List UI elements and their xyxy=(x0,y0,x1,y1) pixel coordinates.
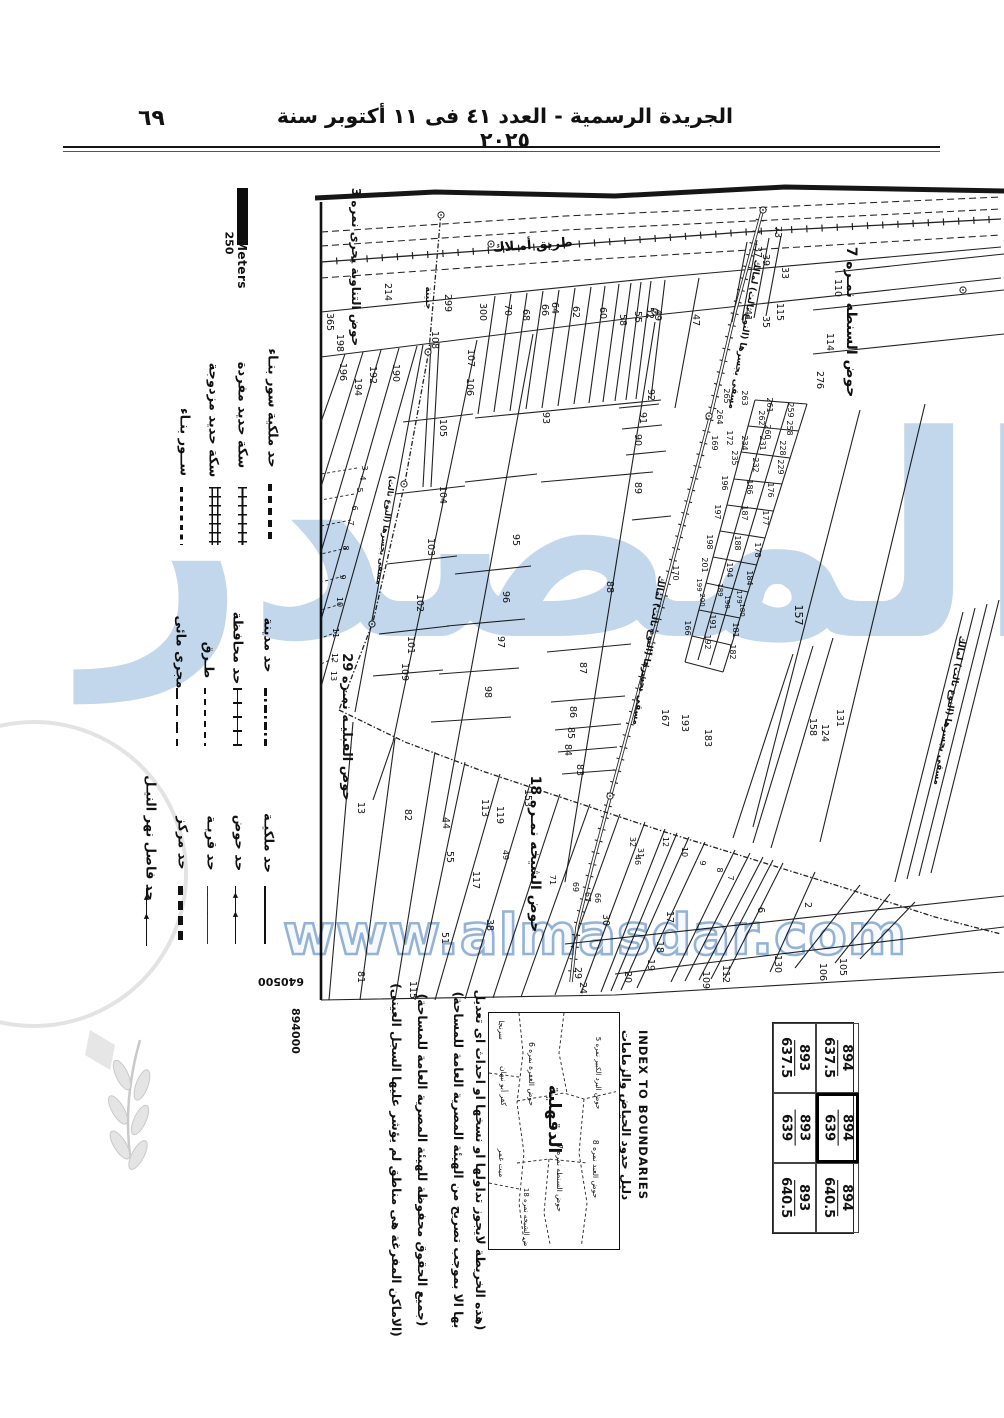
circle-watermark xyxy=(0,720,188,1028)
index-boundary-line xyxy=(489,1183,519,1189)
legend-sample-dotline-icon: ·· xyxy=(207,886,208,944)
parcel-number: 12 xyxy=(661,837,670,847)
legend-sample-rail2-icon xyxy=(209,487,221,545)
parcel-number: 87 xyxy=(577,662,588,674)
junction-marker-dot xyxy=(403,483,405,485)
parcel-number: 12 xyxy=(330,653,339,663)
boundary-line xyxy=(771,638,833,848)
parcel-number: 44 xyxy=(440,817,451,829)
parcel-number: 112 xyxy=(720,965,731,983)
parcel-number: 46 xyxy=(633,855,642,865)
boundary-line xyxy=(387,556,457,564)
parcel-number: 4 xyxy=(358,475,367,480)
parcel-number: 11 xyxy=(331,628,340,638)
index-map-label: كفر أبو نبهان xyxy=(499,1066,509,1106)
parcel-number: 104 xyxy=(437,486,448,504)
fraction-bar xyxy=(837,1040,838,1076)
parcel-number: 51 xyxy=(439,932,450,944)
sheet-coordinate: 640.5 xyxy=(779,1177,793,1218)
boundary-line xyxy=(541,472,653,482)
boundary-line xyxy=(813,334,1004,354)
parcel-number: 263 xyxy=(740,390,749,405)
boundary-line xyxy=(795,885,860,968)
area-label: جنينة xyxy=(423,287,433,310)
boundary-line xyxy=(632,516,671,520)
parcel-number: 106 xyxy=(464,378,475,396)
boundary-line xyxy=(820,404,925,842)
index-table-cell: 894640.5 xyxy=(816,1163,859,1233)
parcel-number: 98 xyxy=(482,686,493,698)
sheet-coordinate: 639 xyxy=(779,1114,793,1141)
disclaimer-line: بها الا بموجب تصريح من الهيئة المصرية ال… xyxy=(451,992,465,1329)
parcel-number: 6 xyxy=(755,907,766,913)
index-boundary-line xyxy=(517,1159,587,1163)
area-label: حوض السنطه نمـره 7 xyxy=(843,247,859,398)
parcel-number: 93 xyxy=(540,412,551,424)
fraction-bar xyxy=(794,1110,795,1146)
boundary-line xyxy=(574,287,591,404)
parcel-number: 71 xyxy=(548,875,557,885)
parcel-number: 17 xyxy=(664,911,675,923)
parcel-number: 235 xyxy=(730,450,739,465)
sheet-number: 893 xyxy=(797,1114,811,1141)
sheet-number: 893 xyxy=(797,1044,811,1071)
parcel-number: 198 xyxy=(705,534,714,549)
parcel-number: 10 xyxy=(680,847,689,857)
legend-sample-arrowline-icon: ▲▲ xyxy=(235,886,236,944)
boundary-line xyxy=(835,894,890,963)
boundary-line xyxy=(685,662,723,672)
sheet-coordinate: 639 xyxy=(822,1114,836,1141)
area-label: طريق أمـلاك xyxy=(492,233,573,256)
parcel-number: 200 xyxy=(698,593,706,606)
parcel-number: 90 xyxy=(632,434,643,446)
parcel-number: 95 xyxy=(510,534,521,546)
parcel-number: 192 xyxy=(367,366,378,384)
boundary-line xyxy=(651,280,665,398)
parcel-number: 3 xyxy=(360,465,369,470)
disclaimer-line: (الاماكن المفرغة هى مناطق لم يؤشر عليها … xyxy=(389,983,403,1336)
legend-item-label: سكة حديد مزدوجة xyxy=(206,363,221,478)
index-map-label: حوض البرد الكبير نمره 5 xyxy=(594,1037,602,1110)
area-label: مسقى بجسرها (النوع ثالث) لمالك xyxy=(630,575,666,726)
wheat-branch-icon xyxy=(70,1025,180,1215)
parcel-number: 130 xyxy=(772,955,783,973)
area-label: مسقى بجسرها (النوع ثالث) لمالك xyxy=(931,635,967,786)
parcel-number: 9 xyxy=(338,574,347,579)
parcel-number: 13 xyxy=(355,802,366,814)
parcel-number: 106 xyxy=(817,963,828,981)
parcel-number: 101 xyxy=(405,636,416,654)
boundary-line xyxy=(339,710,1001,934)
boundary-line xyxy=(315,187,1004,198)
legend-item-label: حد مدينة xyxy=(261,617,276,672)
junction-marker-dot xyxy=(371,623,373,625)
parcel-number: 199 xyxy=(695,578,703,591)
parcel-number: 365 xyxy=(324,313,335,331)
boundary-line xyxy=(699,610,740,618)
parcel-number: 96 xyxy=(500,591,511,603)
parcel-number: 38 xyxy=(484,919,495,931)
legend-item-label: حد مركز xyxy=(175,816,190,869)
sheet-number: 894 xyxy=(840,1044,854,1071)
parcel-number: 169 xyxy=(710,435,719,450)
legend-item-label: ســور بنـاء xyxy=(177,408,192,476)
parcel-number: 81 xyxy=(355,971,366,983)
boundary-line xyxy=(565,896,1004,944)
parcel-number: 172 xyxy=(725,430,734,445)
parcel-number: 102 xyxy=(414,594,425,612)
parcel-number: 113 xyxy=(479,799,490,817)
boundary-line xyxy=(636,281,651,399)
legend-sample-dashshort-icon xyxy=(180,487,183,545)
boundary-line xyxy=(713,557,757,565)
boundary-line xyxy=(551,696,625,702)
parcel-number: 198 xyxy=(334,334,345,352)
map-canvas: 2143651981961941921902993001081071067068… xyxy=(315,182,1004,1012)
parcel-number: 10 xyxy=(335,597,344,607)
legend-item-label: مجرى مائى xyxy=(173,616,188,689)
legend-item-label: حد محافظة xyxy=(230,612,245,685)
parcel-number: 8 xyxy=(341,545,350,550)
page-title: الجريدة الرسمية - العدد ٤١ فى ١١ أكتوبر … xyxy=(255,104,755,152)
index-table-cell-current: 894639 xyxy=(816,1093,859,1163)
parcel-number: 9 xyxy=(698,860,707,865)
sheet-number: 893 xyxy=(797,1184,811,1211)
parcel-number: 85 xyxy=(565,727,576,739)
parcel-number: 67 xyxy=(583,892,592,902)
parcel-number: 110 xyxy=(832,279,843,297)
parcel-number: 32 xyxy=(628,837,637,847)
junction-marker-dot xyxy=(708,415,710,417)
parcel-number: 109 xyxy=(399,663,410,681)
parcel-number: 70 xyxy=(502,304,513,316)
parcel-number: 166 xyxy=(683,620,692,635)
boundary-line xyxy=(415,762,465,1000)
sheet-number: 894 xyxy=(840,1114,854,1141)
parcel-number: 49 xyxy=(652,309,663,321)
index-map-label: حوض الغفرة نمره 6 xyxy=(527,1042,536,1106)
boundary-line xyxy=(321,209,1001,246)
index-map-label: ميت غمر xyxy=(497,1148,506,1177)
parcel-number: 30 xyxy=(600,914,611,926)
index-map: الدقهليةحوض الغفرة نمره 6حوض البرد الكبي… xyxy=(488,1012,620,1250)
boundary-line xyxy=(321,247,1001,312)
parcel-number: 64 xyxy=(549,302,560,314)
scale-bar xyxy=(237,188,248,245)
header-rule xyxy=(63,146,940,148)
parcel-number: 232 xyxy=(751,457,760,472)
index-map-label: الدقهلية xyxy=(544,1085,564,1154)
legend-sample-arrowline2-icon: ▲▲ xyxy=(146,888,147,946)
disclaimer-line: (هذه الخريطة لايجوز تداولها او نسخها او … xyxy=(473,990,487,1331)
boundary-line xyxy=(626,451,666,455)
sheet-coordinate: 640.5 xyxy=(822,1177,836,1218)
parcel-number: 84 xyxy=(562,744,573,756)
parcel-number: 109 xyxy=(700,971,711,989)
parcel-number: 228 xyxy=(778,440,787,455)
parcel-number: 179 xyxy=(735,590,743,603)
legend-sample-dashthick-icon xyxy=(178,886,183,944)
parcel-number: 19 xyxy=(645,959,656,971)
parcel-number: 68 xyxy=(520,309,531,321)
parcel-number: 196 xyxy=(337,363,348,381)
legend-item-label: حد ملكية سور بنـاء xyxy=(265,348,280,467)
index-boundary-line xyxy=(544,1159,551,1246)
parcel-number: 194 xyxy=(352,378,363,396)
boundary-line xyxy=(622,425,662,429)
parcel-number: 55 xyxy=(444,851,455,863)
parcel-number: 89 xyxy=(632,482,643,494)
parcel-number: 20 xyxy=(622,971,633,983)
parcel-number: 66 xyxy=(593,893,602,903)
legend-sample-solidline-icon xyxy=(264,886,266,944)
junction-marker-dot xyxy=(609,795,611,797)
parcel-number: 13 xyxy=(329,671,338,681)
index-boundary-line xyxy=(579,1099,587,1246)
parcel-number: 264 xyxy=(715,409,724,424)
parcel-number: 62 xyxy=(570,306,581,318)
parcel-number: 178 xyxy=(753,542,762,557)
parcel-number: 124 xyxy=(819,724,830,742)
parcel-number: 190 xyxy=(390,364,401,382)
parcel-number: 33 xyxy=(779,267,790,279)
parcel-number: 2 xyxy=(802,902,813,908)
boundary-line xyxy=(379,626,449,634)
fraction-bar xyxy=(794,1040,795,1076)
parcel-number: 176 xyxy=(766,482,775,497)
parcel-number: 186 xyxy=(745,479,754,494)
legend-item-label: حد فاصل نهر النيـل xyxy=(143,775,158,901)
legend-item-label: حد حوض xyxy=(232,815,247,871)
parcel-number: 5 xyxy=(355,487,364,492)
parcel-number: 82 xyxy=(402,809,413,821)
fraction-bar xyxy=(837,1110,838,1146)
parcel-number: 259 xyxy=(786,402,795,417)
parcel-number: 7 xyxy=(346,520,355,525)
parcel-number: 234 xyxy=(740,435,749,450)
boundary-line xyxy=(555,724,621,730)
parcel-number: 189 xyxy=(716,583,724,596)
parcel-number: 18 xyxy=(654,941,665,953)
parcel-number: 69 xyxy=(571,882,580,892)
index-table-cell: 893639 xyxy=(773,1093,816,1163)
parcel-number: 184 xyxy=(745,570,754,585)
parcel-number: 83 xyxy=(574,764,585,776)
parcel-number: 107 xyxy=(465,349,476,367)
area-label: حوض الشيخه نمـره 18 xyxy=(527,776,543,933)
legend-sample-dashdot-icon xyxy=(264,688,267,746)
legend-sample-dashlong-icon xyxy=(176,688,178,746)
boundary-line xyxy=(360,738,395,1000)
parcel-number: 131 xyxy=(834,709,845,727)
parcel-number: 158 xyxy=(807,718,818,736)
legend-item-label: حد ملكيـة xyxy=(261,813,276,873)
parcel-number: 180 xyxy=(738,603,746,616)
junction-marker-dot xyxy=(762,209,764,211)
parcel-number: 262 xyxy=(757,410,766,425)
parcel-number: 192 xyxy=(703,634,712,649)
legend-item-label: سكة حديد مفردة xyxy=(235,362,250,468)
index-title-arabic: دليل حدود الحياض والزمامات xyxy=(619,1030,633,1200)
gazette-page: الجريدة الرسمية - العدد ٤١ فى ١١ أكتوبر … xyxy=(0,0,1004,1418)
boundary-line xyxy=(919,604,987,876)
parcel-number: 260 xyxy=(763,424,772,439)
junction-marker-dot xyxy=(427,351,429,353)
sheet-coordinate: 637.5 xyxy=(779,1037,793,1078)
boundary-line xyxy=(753,410,860,827)
parcel-number: 73 xyxy=(772,226,783,238)
legend-item-label: طـرق xyxy=(201,642,216,678)
parcel-number: 91 xyxy=(637,412,648,424)
index-title-english: INDEX TO BOUNDARIES xyxy=(636,1030,650,1200)
boundary-line xyxy=(321,197,1001,232)
index-table: 893637.5894637.5893639894639893640.58946… xyxy=(772,1022,854,1234)
boundary-line xyxy=(753,646,813,843)
parcel-number: 86 xyxy=(567,706,578,718)
boundary-line xyxy=(835,254,1004,272)
boundary-line xyxy=(615,927,1004,974)
legend-sample-rail1-icon xyxy=(238,487,247,545)
fraction-bar xyxy=(837,1180,838,1216)
parcel-number: 276 xyxy=(814,371,825,389)
boundary-line xyxy=(895,612,963,882)
parcel-number: 119 xyxy=(494,806,505,824)
boundary-line xyxy=(619,404,659,408)
parcel-number: 55 xyxy=(632,311,643,323)
index-map-canvas: الدقهليةحوض الغفرة نمره 6حوض البرد الكبي… xyxy=(489,1013,616,1246)
boundary-line xyxy=(447,619,525,626)
legend-sample-dashed-icon xyxy=(204,688,206,746)
boundary-line xyxy=(547,644,631,652)
northing-coordinate-label: 894000 xyxy=(289,1008,302,1054)
scale-value: 250 xyxy=(223,232,236,255)
legend-sample-crossline-icon xyxy=(233,688,242,746)
boundary-line xyxy=(455,566,531,574)
boundary-line xyxy=(755,400,807,404)
scale-unit: Meters xyxy=(235,239,249,289)
cadastral-map: 2143651981961941921902993001081071067068… xyxy=(315,182,1004,1012)
parcel-number: 117 xyxy=(470,871,481,889)
parcel-number: 300 xyxy=(477,303,488,321)
parcel-number: 197 xyxy=(713,504,722,519)
junction-marker-dot xyxy=(440,214,442,216)
parcel-number: 35 xyxy=(760,316,771,328)
index-table-cell: 893637.5 xyxy=(773,1023,816,1093)
index-map-label: سرنجا xyxy=(497,1020,506,1040)
parcel-number: 49 xyxy=(501,850,510,860)
parcel-number: 97 xyxy=(495,636,506,648)
parcel-number: 88 xyxy=(604,581,615,593)
disclaimer-line: (جميع الحقوق محفوظة للهيئة المصرية العام… xyxy=(415,994,429,1327)
boundary-line xyxy=(439,668,519,674)
parcel-number: 115 xyxy=(774,303,785,321)
parcel-number: 37 xyxy=(752,246,763,258)
boundary-line xyxy=(589,286,605,403)
index-table-cell: 893640.5 xyxy=(773,1163,816,1233)
boundary-line xyxy=(475,400,661,418)
index-map-label: حوض السنطه نمره 7 xyxy=(555,1144,564,1212)
parcel-number: 261 xyxy=(765,397,774,412)
parcel-number: 183 xyxy=(702,729,713,747)
index-boundary-line xyxy=(559,1013,567,1093)
parcel-number: 103 xyxy=(425,538,436,556)
boundary-line xyxy=(581,822,645,993)
area-label: حوض التناوية بحرى نمره 3 xyxy=(348,188,363,346)
easting-coordinate-label: 640500 xyxy=(258,975,304,988)
index-map-label: حوض الشيخه نمره 18 xyxy=(522,1188,530,1246)
parcel-number: 105 xyxy=(837,958,848,976)
junction-marker-dot xyxy=(962,289,964,291)
parcel-number: 201 xyxy=(700,557,709,572)
parcel-number: 181 xyxy=(731,622,740,637)
parcel-number: 214 xyxy=(382,283,393,301)
parcel-number: 188 xyxy=(733,535,742,550)
parcel-number: 7 xyxy=(726,875,735,880)
parcel-number: 105 xyxy=(437,419,448,437)
boundary-line xyxy=(671,850,735,982)
boundary-line xyxy=(373,340,477,800)
parcel-number: 194 xyxy=(725,562,734,577)
boundary-line xyxy=(493,794,560,998)
parcel-number: 114 xyxy=(824,333,835,351)
parcel-number: 182 xyxy=(728,644,737,659)
parcel-number: 187 xyxy=(740,505,749,520)
area-label: حوض القبليـه نمـره 29 xyxy=(339,653,354,800)
parcel-number: 170 xyxy=(671,565,680,580)
legend-item-label: حد قريـة xyxy=(204,815,219,870)
parcel-number: 8 xyxy=(715,867,724,872)
parcel-number: 177 xyxy=(761,510,770,525)
parcel-number: 92 xyxy=(645,389,656,401)
parcel-number: 6 xyxy=(350,505,359,510)
parcel-number: 47 xyxy=(690,314,701,326)
boundary-line xyxy=(465,474,537,482)
parcel-number: 191 xyxy=(708,614,717,629)
header-rule-thin xyxy=(63,151,940,152)
boundary-line xyxy=(675,278,699,408)
parcel-number: 299 xyxy=(442,294,453,312)
sheet-coordinate: 637.5 xyxy=(822,1037,836,1078)
boundary-line xyxy=(562,770,615,774)
index-map-label: حوض العند نمره 8 xyxy=(591,1140,600,1199)
boundary-line xyxy=(603,284,619,402)
parcel-number: 167 xyxy=(659,709,670,727)
boundary-line xyxy=(395,752,435,1000)
boundary-line xyxy=(443,334,533,822)
page-number: ٦٩ xyxy=(138,106,165,131)
boundary-line xyxy=(423,344,431,487)
parcel-number: 58 xyxy=(617,314,628,326)
parcel-number: 66 xyxy=(539,304,550,316)
parcel-number: 29 xyxy=(572,967,583,979)
parcel-number: 190 xyxy=(723,595,731,608)
boundary-line xyxy=(431,343,439,487)
boundary-line xyxy=(431,717,511,722)
parcel-number: 193 xyxy=(679,714,690,732)
parcel-number: 24 xyxy=(577,982,588,994)
parcel-number: 157 xyxy=(792,605,805,626)
sheet-number: 894 xyxy=(840,1184,854,1211)
fraction-bar xyxy=(794,1180,795,1216)
parcel-number: 60 xyxy=(597,307,608,319)
parcel-number: 258 xyxy=(785,420,794,435)
parcel-number: 196 xyxy=(720,475,729,490)
legend-sample-dashbold-icon xyxy=(268,484,272,542)
index-table-cell: 894637.5 xyxy=(816,1023,859,1093)
parcel-number: 229 xyxy=(776,459,785,474)
parcel-number: 108 xyxy=(429,331,440,349)
